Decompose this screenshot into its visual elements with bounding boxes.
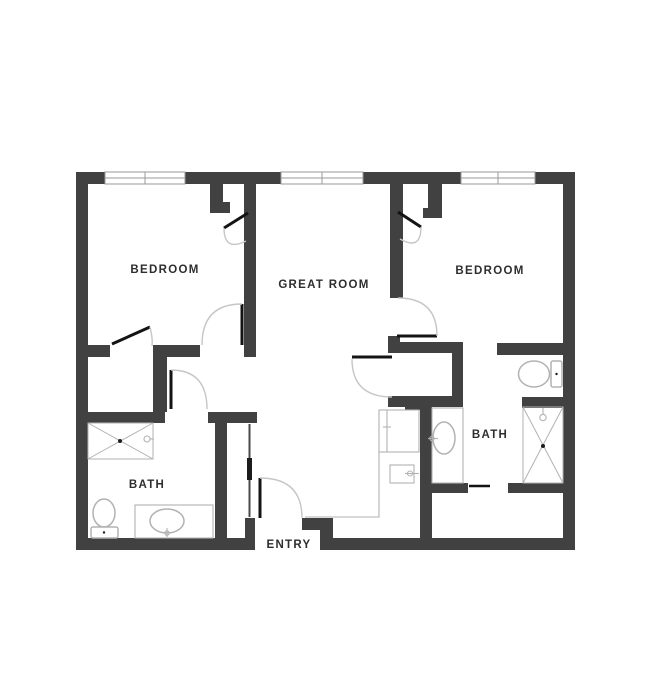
door-swing-arc (224, 228, 246, 244)
sink-icon (390, 465, 419, 483)
wall (76, 538, 255, 550)
window (461, 172, 535, 184)
door-swing-arc (260, 478, 302, 518)
room-label-bedroom-left: BEDROOM (130, 264, 199, 276)
wall (508, 483, 563, 493)
wall (320, 530, 333, 550)
vanity-icon (428, 408, 463, 483)
wall (76, 172, 88, 550)
doors (112, 212, 490, 518)
room-label-bath-left: BATH (129, 479, 165, 491)
wall (76, 412, 165, 423)
interior-walls (76, 184, 563, 550)
windows (105, 172, 535, 184)
wall (215, 423, 227, 538)
wall (153, 357, 167, 412)
room-label-bath-right: BATH (472, 429, 508, 441)
refrigerator-icon (379, 410, 419, 452)
faucet-icon (144, 436, 150, 442)
wall (497, 343, 563, 355)
door-swing-arc (202, 304, 242, 345)
door-leaf (112, 327, 150, 344)
wall (390, 184, 403, 298)
wall (244, 184, 256, 357)
wall (320, 538, 575, 550)
shower-icon (523, 407, 563, 483)
door-swing-arc (398, 298, 437, 336)
wall (423, 208, 442, 218)
toilet-icon (519, 361, 563, 387)
vanity-icon (135, 505, 213, 538)
wall (522, 397, 563, 408)
wall (153, 345, 200, 357)
room-label-great-room: GREAT ROOM (278, 279, 369, 291)
door-swing-arc (171, 370, 207, 409)
wall (185, 172, 281, 184)
wall (302, 518, 333, 530)
wall (563, 172, 575, 550)
pocket-door-leaf (247, 458, 252, 480)
door-swing-arc (400, 227, 421, 243)
outer-walls (76, 172, 575, 550)
wall (208, 412, 257, 423)
door-swing-arc (150, 327, 152, 346)
wall (420, 400, 432, 538)
wall (432, 483, 468, 493)
shower-icon (88, 423, 154, 459)
toilet-icon (91, 499, 118, 538)
wall (210, 202, 230, 213)
wall (76, 345, 110, 357)
door-swing-arc (352, 359, 392, 397)
room-label-entry: ENTRY (266, 539, 311, 551)
window (105, 172, 185, 184)
wall (428, 184, 442, 208)
floorplan-drawing: BEDROOM GREAT ROOM BEDROOM BATH BATH ENT… (0, 0, 650, 700)
wall (363, 172, 461, 184)
wall (245, 518, 255, 550)
window (281, 172, 363, 184)
counter-icon (305, 452, 379, 517)
wall (405, 400, 420, 410)
room-label-bedroom-right: BEDROOM (455, 265, 524, 277)
room-labels: BEDROOM GREAT ROOM BEDROOM BATH BATH ENT… (129, 264, 525, 551)
floorplan-canvas: BEDROOM GREAT ROOM BEDROOM BATH BATH ENT… (0, 0, 650, 700)
